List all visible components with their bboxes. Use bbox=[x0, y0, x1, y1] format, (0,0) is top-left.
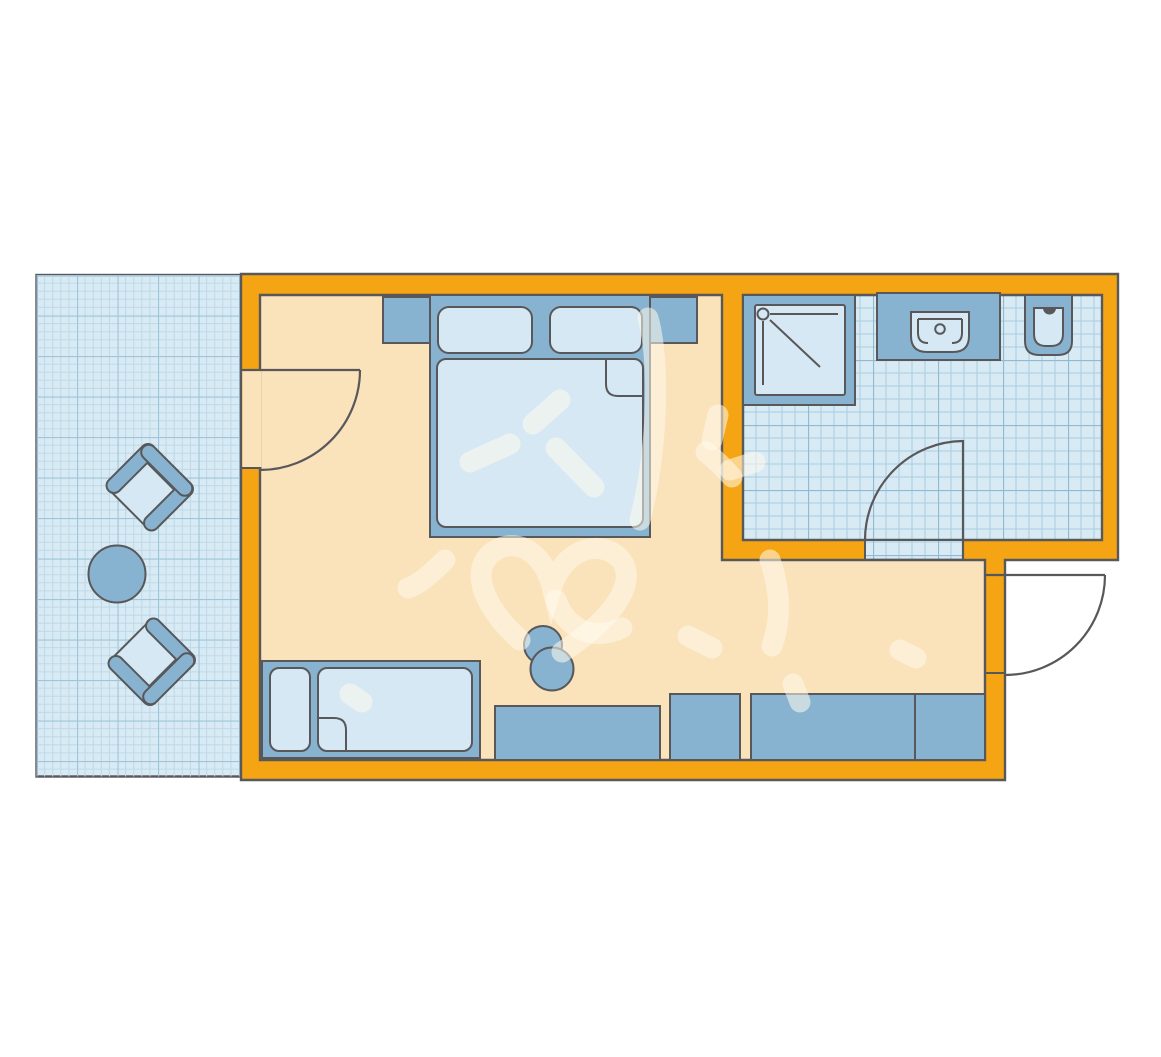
balcony-door-gap bbox=[242, 369, 261, 469]
watermark-stroke bbox=[793, 684, 800, 702]
floor-plan-canvas bbox=[0, 0, 1161, 1057]
bathroom-door-opening bbox=[865, 540, 963, 561]
watermark-stroke bbox=[350, 694, 362, 702]
bed-pillow-right bbox=[550, 307, 642, 353]
wardrobe bbox=[915, 694, 985, 760]
washbasin-drain bbox=[935, 324, 945, 334]
watermark-stroke bbox=[770, 560, 779, 646]
shower-head-icon bbox=[758, 309, 769, 320]
balcony-table bbox=[89, 546, 146, 603]
sideboard bbox=[751, 694, 915, 760]
washbasin bbox=[877, 293, 1000, 360]
floor-plan bbox=[0, 0, 1161, 1057]
nightstand-left bbox=[383, 297, 430, 343]
sofa-bed bbox=[262, 661, 480, 758]
sofa-bed-mattress bbox=[318, 668, 472, 751]
balcony-tile-grid bbox=[37, 275, 242, 777]
sofa-bed-pillow bbox=[270, 668, 310, 751]
bed-duvet bbox=[437, 359, 643, 527]
watermark-stroke bbox=[900, 650, 916, 658]
watermark-stroke bbox=[712, 415, 718, 440]
cabinet bbox=[670, 694, 740, 760]
toilet bbox=[1025, 295, 1072, 355]
shower bbox=[743, 295, 855, 405]
balcony-door-opening bbox=[241, 368, 262, 469]
shower-tray bbox=[755, 305, 845, 395]
balcony bbox=[37, 275, 242, 777]
storage-units bbox=[670, 694, 985, 760]
watermark-stroke bbox=[688, 636, 712, 648]
bathroom-door-gap-tiles bbox=[866, 541, 962, 561]
entrance-door-swing-arc bbox=[1005, 575, 1105, 675]
bed-pillow-left bbox=[438, 307, 532, 353]
desk bbox=[495, 706, 660, 760]
